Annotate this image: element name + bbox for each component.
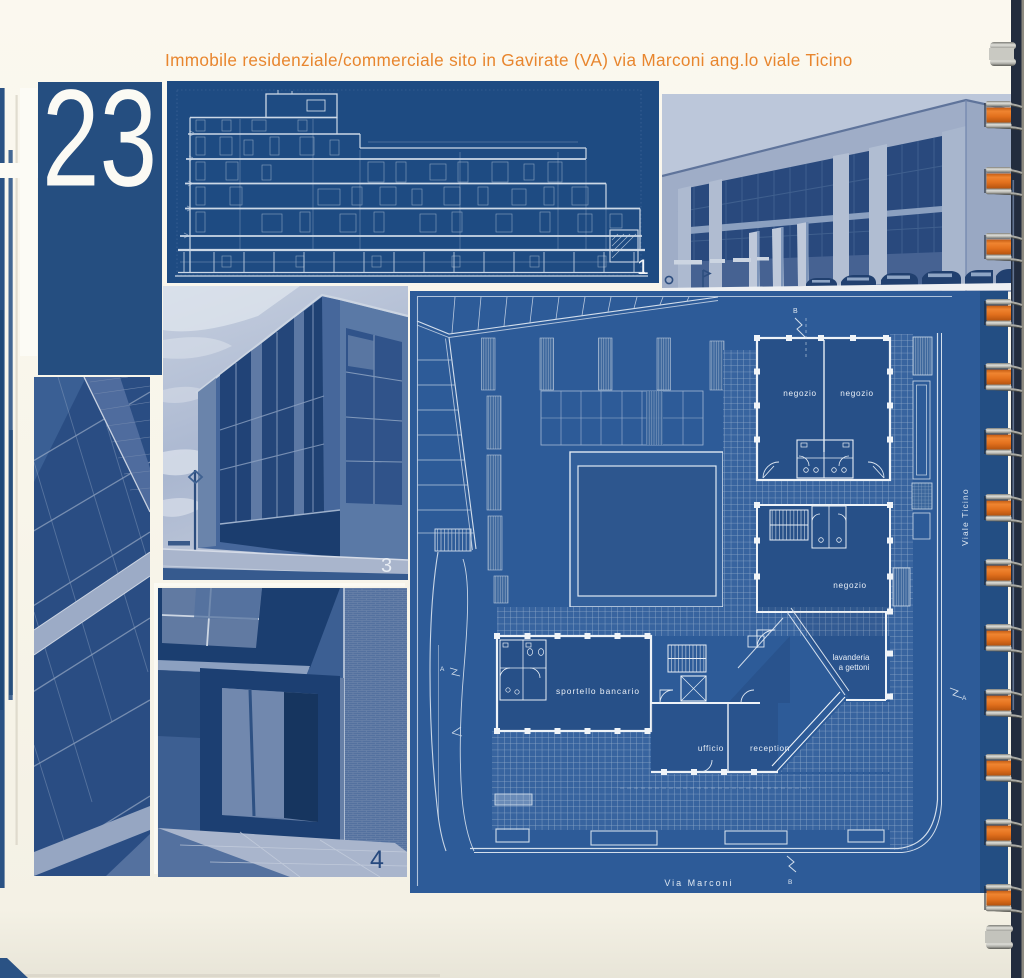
svg-text:a gettoni: a gettoni xyxy=(839,663,870,672)
svg-text:Via Marconi: Via Marconi xyxy=(664,878,733,888)
svg-text:Viale Ticino: Viale Ticino xyxy=(960,488,970,546)
svg-text:A: A xyxy=(440,666,445,673)
svg-text:lavanderia: lavanderia xyxy=(833,653,870,662)
svg-text:ufficio: ufficio xyxy=(698,744,724,753)
svg-text:A: A xyxy=(962,695,967,702)
svg-text:1: 1 xyxy=(637,256,649,279)
svg-text:negozio: negozio xyxy=(783,389,817,398)
svg-text:negozio: negozio xyxy=(840,389,874,398)
svg-text:negozio: negozio xyxy=(833,581,867,590)
svg-text:3: 3 xyxy=(381,555,392,577)
svg-text:B: B xyxy=(788,879,792,886)
svg-text:23: 23 xyxy=(42,61,157,215)
svg-text:sportello bancario: sportello bancario xyxy=(556,686,640,696)
svg-text:B: B xyxy=(793,308,798,315)
svg-text:reception: reception xyxy=(750,744,790,753)
svg-text:Immobile residenziale/commerci: Immobile residenziale/commerciale sito i… xyxy=(165,50,853,70)
svg-text:4: 4 xyxy=(370,846,384,874)
